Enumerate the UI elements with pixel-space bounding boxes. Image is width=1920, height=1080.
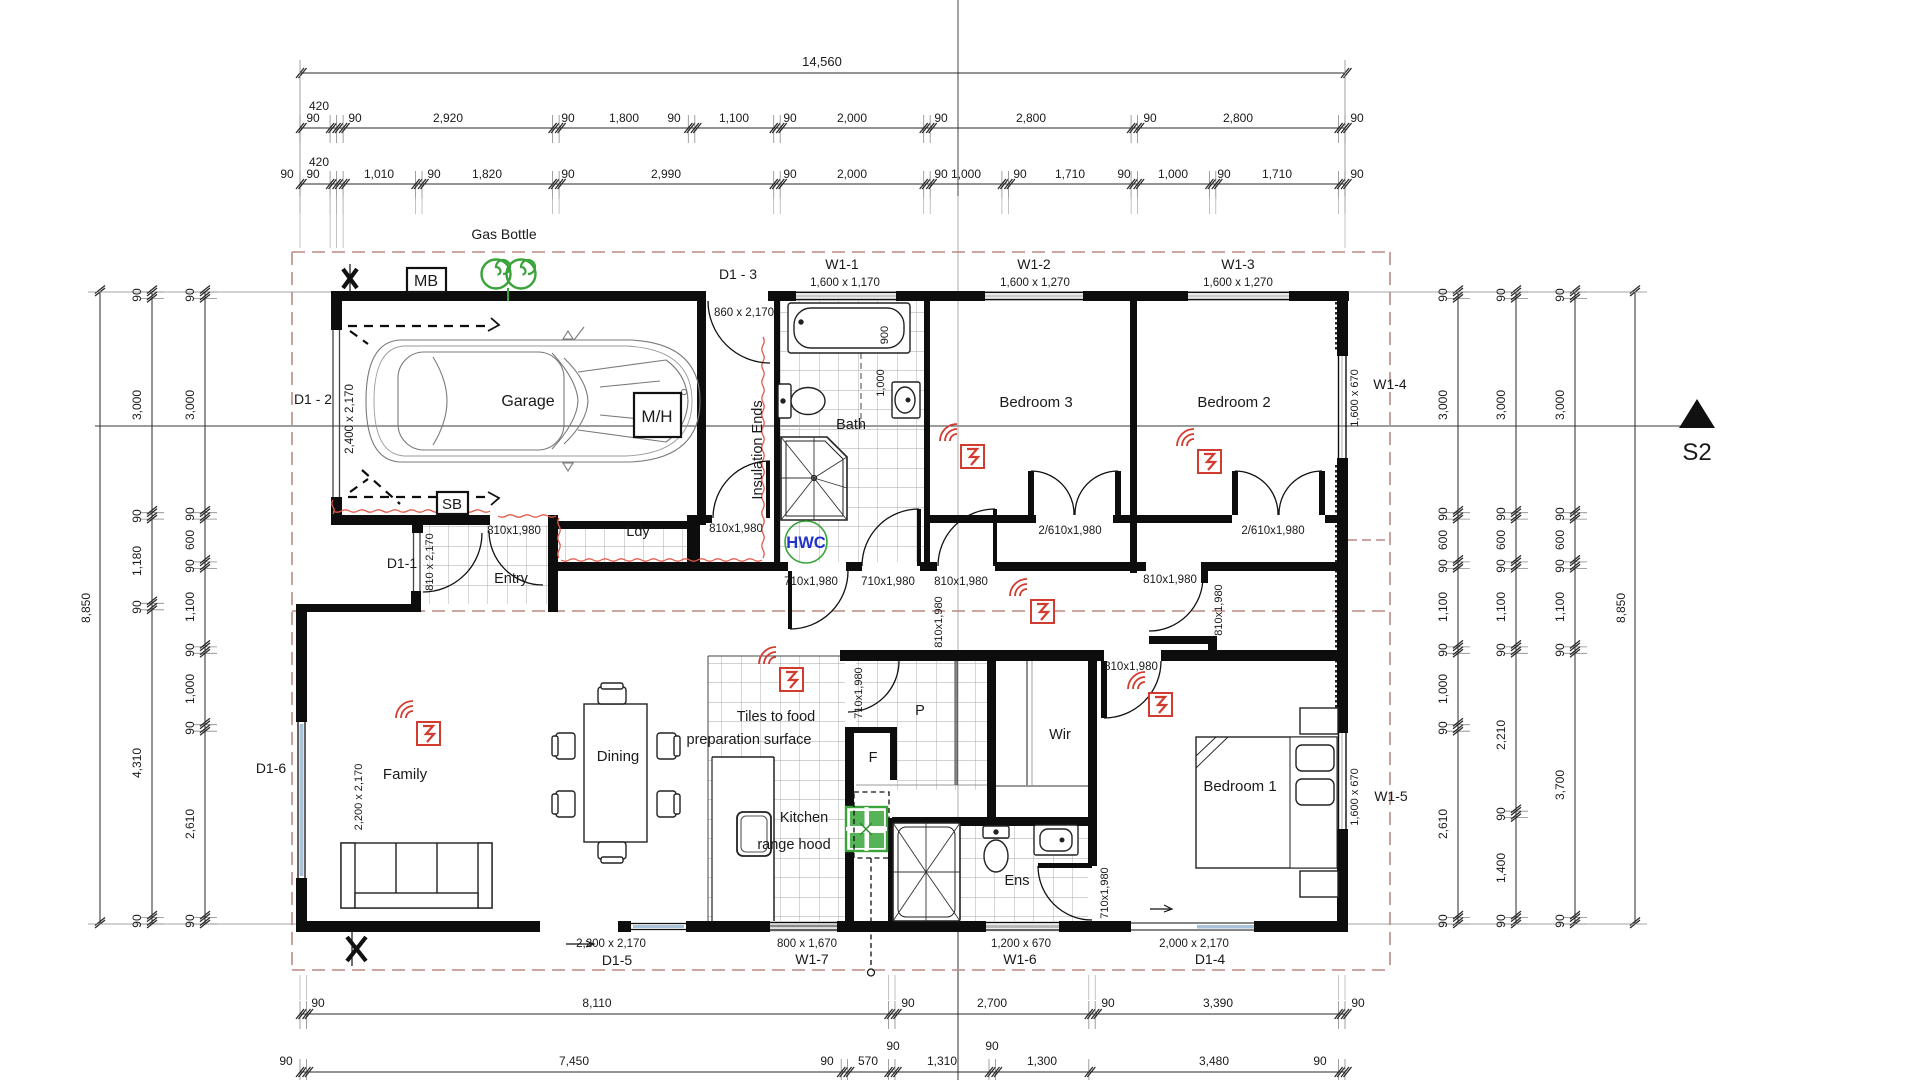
svg-text:800 x 1,670: 800 x 1,670 [777, 938, 837, 950]
svg-text:1,800: 1,800 [609, 111, 639, 125]
svg-text:3,000: 3,000 [1436, 390, 1450, 420]
svg-text:1,000: 1,000 [183, 674, 197, 704]
svg-text:90: 90 [1117, 167, 1131, 181]
svg-text:1,000: 1,000 [1158, 167, 1188, 181]
svg-text:90: 90 [1436, 559, 1450, 573]
svg-text:1,600 x 1,270: 1,600 x 1,270 [1203, 277, 1273, 289]
svg-text:D1-6: D1-6 [256, 760, 287, 776]
svg-text:Gas Bottle: Gas Bottle [471, 226, 537, 242]
svg-text:1,010: 1,010 [364, 167, 394, 181]
svg-text:1,100: 1,100 [719, 111, 749, 125]
svg-text:range hood: range hood [757, 837, 830, 853]
svg-text:90: 90 [783, 111, 797, 125]
svg-text:3,000: 3,000 [183, 390, 197, 420]
svg-text:90: 90 [311, 996, 325, 1010]
svg-text:90: 90 [934, 111, 948, 125]
svg-text:MB: MB [414, 273, 438, 290]
svg-text:810x1,980: 810x1,980 [934, 576, 988, 588]
svg-text:W1-5: W1-5 [1374, 788, 1408, 804]
svg-text:1,100: 1,100 [1494, 592, 1508, 622]
svg-text:4,310: 4,310 [130, 748, 144, 778]
svg-text:90: 90 [783, 167, 797, 181]
svg-text:90: 90 [1494, 559, 1508, 573]
svg-text:D1 - 2: D1 - 2 [294, 391, 332, 407]
svg-text:2,210: 2,210 [1494, 720, 1508, 750]
svg-text:600: 600 [1553, 530, 1567, 550]
svg-text:1,820: 1,820 [472, 167, 502, 181]
svg-text:Wir: Wir [1049, 727, 1071, 743]
svg-text:90: 90 [901, 996, 915, 1010]
svg-text:P: P [915, 703, 925, 719]
svg-text:W1-6: W1-6 [1003, 951, 1037, 967]
svg-text:90: 90 [1101, 996, 1115, 1010]
svg-text:90: 90 [1494, 288, 1508, 302]
svg-text:90: 90 [280, 167, 294, 181]
svg-text:90: 90 [561, 167, 575, 181]
svg-text:2,610: 2,610 [1436, 809, 1450, 839]
svg-text:1,710: 1,710 [1055, 167, 1085, 181]
svg-text:2,800: 2,800 [1223, 111, 1253, 125]
svg-text:2,800: 2,800 [1016, 111, 1046, 125]
svg-text:810x1,980: 810x1,980 [1143, 574, 1197, 586]
svg-text:570: 570 [858, 1054, 878, 1068]
svg-text:90: 90 [1217, 167, 1231, 181]
svg-text:90: 90 [1436, 643, 1450, 657]
svg-text:90: 90 [1553, 643, 1567, 657]
svg-text:90: 90 [985, 1039, 999, 1053]
svg-text:90: 90 [1553, 507, 1567, 521]
svg-text:90: 90 [306, 167, 320, 181]
svg-text:1,600 x 670: 1,600 x 670 [1349, 369, 1361, 427]
svg-text:90: 90 [820, 1054, 834, 1068]
svg-text:1,310: 1,310 [927, 1054, 957, 1068]
svg-text:Ens: Ens [1005, 873, 1030, 889]
svg-text:90: 90 [183, 643, 197, 657]
svg-text:Ldy: Ldy [626, 524, 650, 540]
svg-text:1,200 x 670: 1,200 x 670 [991, 938, 1051, 950]
svg-text:1,100: 1,100 [1553, 592, 1567, 622]
svg-text:2,000: 2,000 [837, 111, 867, 125]
svg-text:600: 600 [1494, 530, 1508, 550]
svg-text:90: 90 [1553, 288, 1567, 302]
svg-text:90: 90 [130, 600, 144, 614]
svg-text:2,990: 2,990 [651, 167, 681, 181]
svg-text:810 x 2,170: 810 x 2,170 [424, 533, 436, 591]
svg-text:3,000: 3,000 [130, 390, 144, 420]
svg-text:90: 90 [1351, 996, 1365, 1010]
svg-text:SB: SB [442, 496, 462, 513]
svg-text:3,000: 3,000 [1494, 390, 1508, 420]
svg-text:Family: Family [383, 766, 428, 783]
svg-text:90: 90 [130, 914, 144, 928]
svg-text:90: 90 [183, 288, 197, 302]
svg-text:W1-2: W1-2 [1017, 256, 1051, 272]
svg-text:90: 90 [561, 111, 575, 125]
svg-text:810x1,980: 810x1,980 [1213, 584, 1225, 635]
svg-text:90: 90 [427, 167, 441, 181]
svg-text:90: 90 [183, 721, 197, 735]
svg-text:860 x 2,170: 860 x 2,170 [714, 307, 774, 319]
svg-text:preparation surface: preparation surface [687, 732, 812, 748]
svg-text:Entry: Entry [494, 571, 529, 587]
svg-text:710x1,980: 710x1,980 [853, 667, 865, 718]
svg-text:14,560: 14,560 [802, 54, 842, 69]
svg-text:3,390: 3,390 [1203, 996, 1233, 1010]
svg-text:2/610x1,980: 2/610x1,980 [1038, 525, 1101, 537]
svg-text:7,450: 7,450 [559, 1054, 589, 1068]
svg-text:810x1,980: 810x1,980 [1104, 661, 1158, 673]
svg-text:1,300: 1,300 [1027, 1054, 1057, 1068]
svg-text:2,610: 2,610 [183, 809, 197, 839]
svg-text:90: 90 [1494, 914, 1508, 928]
svg-text:710x1,980: 710x1,980 [784, 576, 838, 588]
svg-text:Insulation Ends: Insulation Ends [750, 400, 766, 499]
svg-text:810x1,980: 810x1,980 [709, 523, 763, 535]
svg-text:90: 90 [348, 111, 362, 125]
svg-text:S2: S2 [1682, 439, 1711, 466]
svg-text:1,600 x 670: 1,600 x 670 [1349, 768, 1361, 826]
svg-text:1,710: 1,710 [1262, 167, 1292, 181]
svg-text:90: 90 [886, 1039, 900, 1053]
svg-text:D1 - 3: D1 - 3 [719, 266, 757, 282]
svg-text:90: 90 [130, 509, 144, 523]
svg-text:W1-7: W1-7 [795, 951, 829, 967]
svg-text:1,000: 1,000 [1436, 674, 1450, 704]
svg-text:90: 90 [667, 111, 681, 125]
svg-text:810x1,980: 810x1,980 [933, 596, 945, 647]
svg-text:90: 90 [1013, 167, 1027, 181]
svg-text:Bedroom 2: Bedroom 2 [1197, 394, 1270, 411]
svg-text:W1-4: W1-4 [1373, 376, 1407, 392]
svg-text:1,000: 1,000 [951, 167, 981, 181]
svg-text:1,600 x 1,170: 1,600 x 1,170 [810, 277, 880, 289]
svg-text:Garage: Garage [501, 393, 554, 410]
svg-text:8,110: 8,110 [582, 996, 611, 1010]
svg-text:90: 90 [1436, 914, 1450, 928]
svg-text:710x1,980: 710x1,980 [1099, 867, 1111, 918]
svg-text:HWC: HWC [786, 534, 825, 552]
svg-text:90: 90 [130, 288, 144, 302]
svg-text:90: 90 [279, 1054, 293, 1068]
svg-text:90: 90 [1143, 111, 1157, 125]
svg-text:1,600 x 1,270: 1,600 x 1,270 [1000, 277, 1070, 289]
svg-text:90: 90 [934, 167, 948, 181]
svg-text:2,000: 2,000 [837, 167, 867, 181]
svg-text:Dining: Dining [597, 748, 640, 765]
svg-text:90: 90 [1494, 643, 1508, 657]
svg-text:2/610x1,980: 2/610x1,980 [1241, 525, 1304, 537]
svg-text:1,100: 1,100 [183, 592, 197, 622]
svg-text:2,920: 2,920 [433, 111, 463, 125]
svg-text:90: 90 [1436, 507, 1450, 521]
svg-text:D1-5: D1-5 [602, 952, 633, 968]
svg-text:W1-3: W1-3 [1221, 256, 1255, 272]
svg-text:600: 600 [1436, 530, 1450, 550]
svg-text:Kitchen: Kitchen [780, 810, 828, 826]
svg-text:8,850: 8,850 [1614, 593, 1628, 623]
svg-text:90: 90 [1313, 1054, 1327, 1068]
svg-text:2,200 x 2,170: 2,200 x 2,170 [353, 764, 365, 831]
svg-text:90: 90 [1350, 167, 1364, 181]
svg-text:D1-1: D1-1 [387, 555, 418, 571]
svg-text:2,700: 2,700 [977, 996, 1007, 1010]
svg-text:Bedroom 3: Bedroom 3 [999, 394, 1072, 411]
svg-text:90: 90 [1494, 807, 1508, 821]
svg-text:3,000: 3,000 [1553, 390, 1567, 420]
svg-text:90: 90 [1553, 914, 1567, 928]
svg-text:3,700: 3,700 [1553, 770, 1567, 800]
svg-text:8,850: 8,850 [79, 593, 93, 623]
svg-text:M/H: M/H [641, 407, 672, 426]
svg-text:600: 600 [183, 530, 197, 550]
svg-text:2,400 x 2,170: 2,400 x 2,170 [344, 384, 356, 454]
svg-text:Bedroom 1: Bedroom 1 [1203, 778, 1276, 795]
svg-text:900: 900 [879, 326, 891, 344]
svg-text:90: 90 [1436, 721, 1450, 735]
svg-text:90: 90 [1350, 111, 1364, 125]
svg-text:90: 90 [1553, 559, 1567, 573]
svg-text:1,000: 1,000 [875, 369, 887, 397]
svg-text:1,180: 1,180 [130, 546, 144, 576]
svg-text:90: 90 [183, 914, 197, 928]
svg-text:Tiles to food: Tiles to food [737, 709, 815, 725]
svg-text:90: 90 [306, 111, 320, 125]
svg-text:2,000 x 2,170: 2,000 x 2,170 [1159, 938, 1229, 950]
svg-text:D1-4: D1-4 [1195, 951, 1226, 967]
svg-text:F: F [869, 750, 878, 766]
svg-text:Bath: Bath [836, 417, 866, 433]
svg-text:710x1,980: 710x1,980 [861, 576, 915, 588]
svg-text:W1-1: W1-1 [825, 256, 859, 272]
svg-text:810x1,980: 810x1,980 [487, 525, 541, 537]
svg-text:1,100: 1,100 [1436, 592, 1450, 622]
svg-text:90: 90 [1494, 507, 1508, 521]
svg-text:90: 90 [183, 559, 197, 573]
svg-text:1,400: 1,400 [1494, 853, 1508, 883]
svg-text:90: 90 [183, 507, 197, 521]
svg-text:3,480: 3,480 [1199, 1054, 1229, 1068]
svg-text:90: 90 [1436, 288, 1450, 302]
